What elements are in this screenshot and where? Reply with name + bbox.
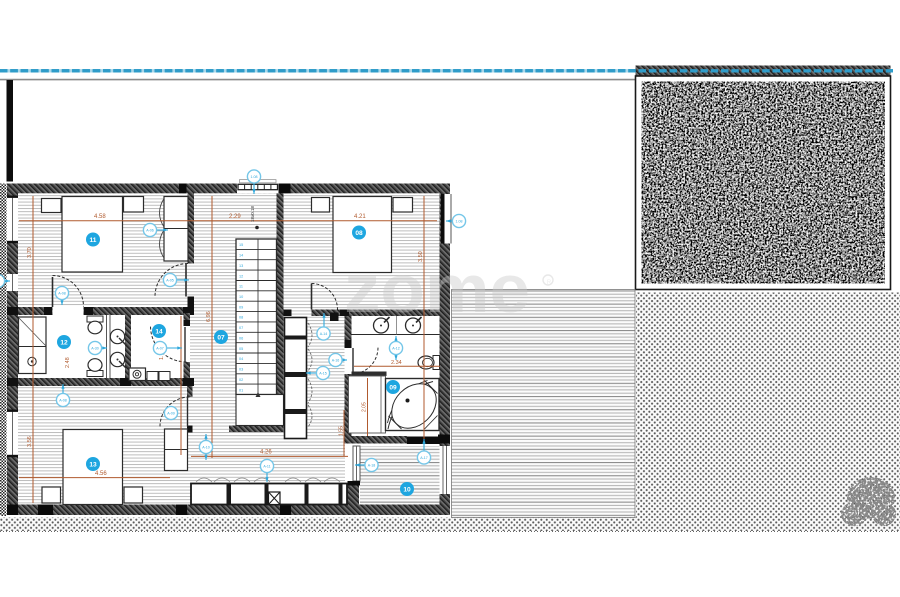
- svg-text:1.08: 1.08: [456, 220, 463, 224]
- svg-text:2.48: 2.48: [65, 357, 71, 368]
- svg-text:3.70: 3.70: [27, 247, 33, 258]
- svg-text:A-08: A-08: [58, 292, 66, 296]
- svg-text:2.34: 2.34: [391, 360, 402, 366]
- svg-text:12: 12: [60, 340, 68, 347]
- svg-text:02: 02: [239, 378, 243, 382]
- svg-text:A-07: A-07: [156, 347, 164, 351]
- svg-text:03: 03: [239, 368, 243, 372]
- svg-text:13: 13: [239, 264, 243, 268]
- svg-text:2.29: 2.29: [229, 214, 241, 220]
- svg-text:A-12: A-12: [392, 347, 400, 351]
- svg-text:A-05: A-05: [166, 279, 174, 283]
- svg-text:1.08: 1.08: [251, 175, 258, 179]
- svg-text:A-16: A-16: [332, 359, 340, 363]
- svg-text:A-15: A-15: [319, 372, 327, 376]
- svg-text:R: R: [547, 280, 552, 286]
- svg-text:4.21: 4.21: [354, 214, 366, 220]
- svg-text:A-17: A-17: [420, 456, 428, 460]
- svg-text:3.56: 3.56: [27, 436, 33, 447]
- svg-text:09: 09: [389, 385, 397, 392]
- svg-text:10: 10: [239, 295, 243, 299]
- svg-text:A-30: A-30: [91, 347, 99, 351]
- svg-text:14: 14: [239, 254, 243, 258]
- svg-text:6.96: 6.96: [206, 311, 212, 322]
- svg-text:4.56: 4.56: [95, 471, 107, 477]
- svg-text:A-14: A-14: [320, 332, 328, 336]
- svg-text:A-06: A-06: [146, 229, 154, 233]
- svg-text:zome: zome: [344, 251, 530, 327]
- svg-text:06: 06: [239, 337, 243, 341]
- svg-text:1.55: 1.55: [339, 426, 345, 436]
- svg-text:A-11: A-11: [263, 465, 270, 469]
- svg-text:08: 08: [239, 316, 243, 320]
- svg-text:07: 07: [217, 335, 225, 342]
- svg-text:13: 13: [89, 462, 97, 469]
- svg-text:04: 04: [239, 357, 243, 361]
- svg-text:08: 08: [355, 230, 363, 237]
- svg-text:4.26: 4.26: [260, 450, 272, 456]
- svg-text:A-18: A-18: [368, 464, 376, 468]
- svg-text:2.05: 2.05: [362, 402, 368, 412]
- svg-text:A-08: A-08: [59, 399, 67, 403]
- svg-text:15: 15: [239, 243, 243, 247]
- svg-text:14: 14: [155, 329, 163, 336]
- svg-text:11: 11: [239, 285, 243, 289]
- svg-text:01: 01: [239, 388, 243, 392]
- svg-text:A-09: A-09: [167, 412, 175, 416]
- svg-text:07: 07: [239, 326, 243, 330]
- svg-text:A-10: A-10: [202, 446, 210, 450]
- svg-text:11: 11: [90, 237, 97, 244]
- svg-text:09: 09: [239, 305, 243, 309]
- svg-text:05: 05: [239, 347, 243, 351]
- svg-text:10: 10: [403, 487, 411, 494]
- svg-text:18x0.18: 18x0.18: [250, 205, 255, 222]
- svg-text:12: 12: [239, 274, 243, 278]
- svg-text:4.58: 4.58: [94, 214, 106, 220]
